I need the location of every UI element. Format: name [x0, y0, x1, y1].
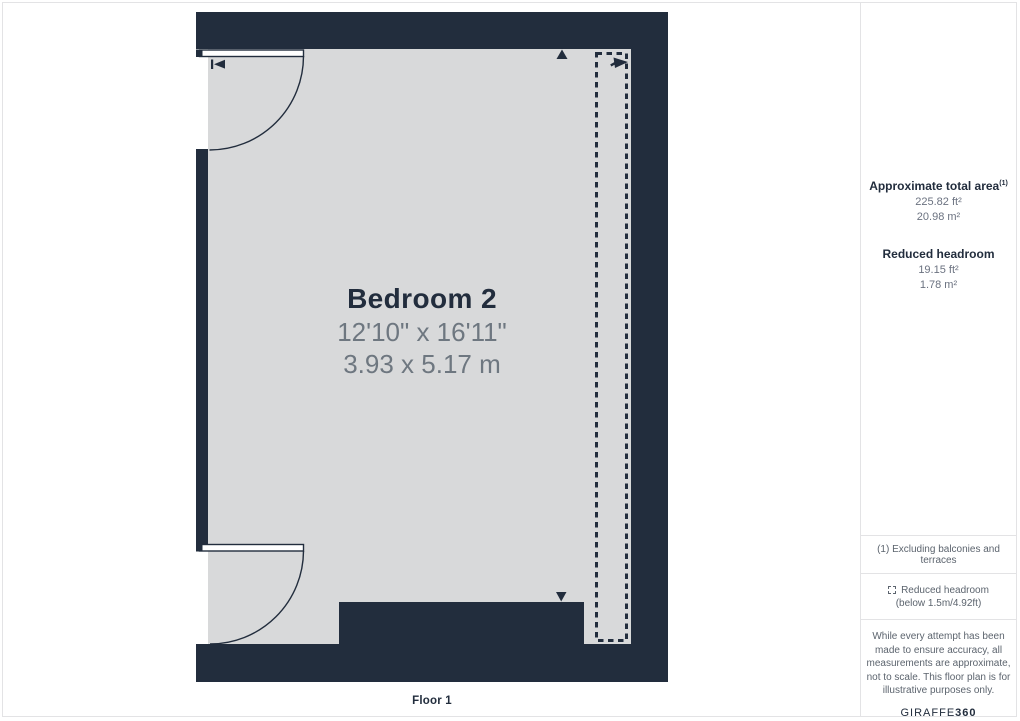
reduced-headroom-imperial: 19.15 ft² — [861, 263, 1016, 277]
disclaimer-text: While every attempt has been made to ens… — [864, 630, 1014, 698]
logo-suffix: 360 — [955, 707, 976, 719]
reduced-headroom-metric: 1.78 m² — [861, 278, 1016, 292]
door-leaf — [200, 50, 304, 57]
room-name: Bedroom 2 — [272, 282, 572, 316]
total-area-stat: Approximate total area(1) 225.82 ft² 20.… — [861, 176, 1016, 224]
room-dimensions-imperial: 12'10" x 16'11" — [272, 316, 572, 348]
door-leaf — [200, 545, 304, 552]
legend-label: Reduced headroom — [901, 584, 989, 597]
door-jamb — [196, 50, 203, 58]
total-area-imperial: 225.82 ft² — [861, 195, 1016, 209]
total-area-label-text: Approximate total area — [869, 179, 999, 193]
total-area-label: Approximate total area(1) — [861, 176, 1016, 194]
door-jamb — [196, 544, 203, 552]
reduced-headroom-legend-icon — [888, 586, 896, 594]
room-label: Bedroom 2 12'10" x 16'11" 3.93 x 5.17 m — [272, 282, 572, 380]
door-opening-top — [194, 49, 208, 149]
floorplan-page: Bedroom 2 12'10" x 16'11" 3.93 x 5.17 m … — [0, 0, 1020, 721]
floor-label: Floor 1 — [352, 695, 512, 707]
footnote-text: (1) Excluding balconies and terraces — [861, 544, 1016, 566]
reduced-headroom-label: Reduced headroom — [861, 246, 1016, 262]
legend-section: Reduced headroom (below 1.5m/4.92ft) — [861, 573, 1016, 619]
legend-sublabel: (below 1.5m/4.92ft) — [896, 597, 982, 610]
total-area-footnote-marker: (1) — [999, 180, 1008, 187]
giraffe360-logo: GIRAFFE360 — [900, 707, 976, 719]
footnote-section: (1) Excluding balconies and terraces — [861, 535, 1016, 573]
door-opening-bottom — [194, 551, 208, 644]
logo-brand: GIRAFFE — [900, 707, 955, 719]
total-area-metric: 20.98 m² — [861, 210, 1016, 224]
room-dimensions-metric: 3.93 x 5.17 m — [272, 348, 572, 380]
reduced-headroom-stat: Reduced headroom 19.15 ft² 1.78 m² — [861, 246, 1016, 292]
disclaimer-section: While every attempt has been made to ens… — [861, 619, 1016, 716]
info-sidebar: Approximate total area(1) 225.82 ft² 20.… — [860, 0, 1017, 721]
